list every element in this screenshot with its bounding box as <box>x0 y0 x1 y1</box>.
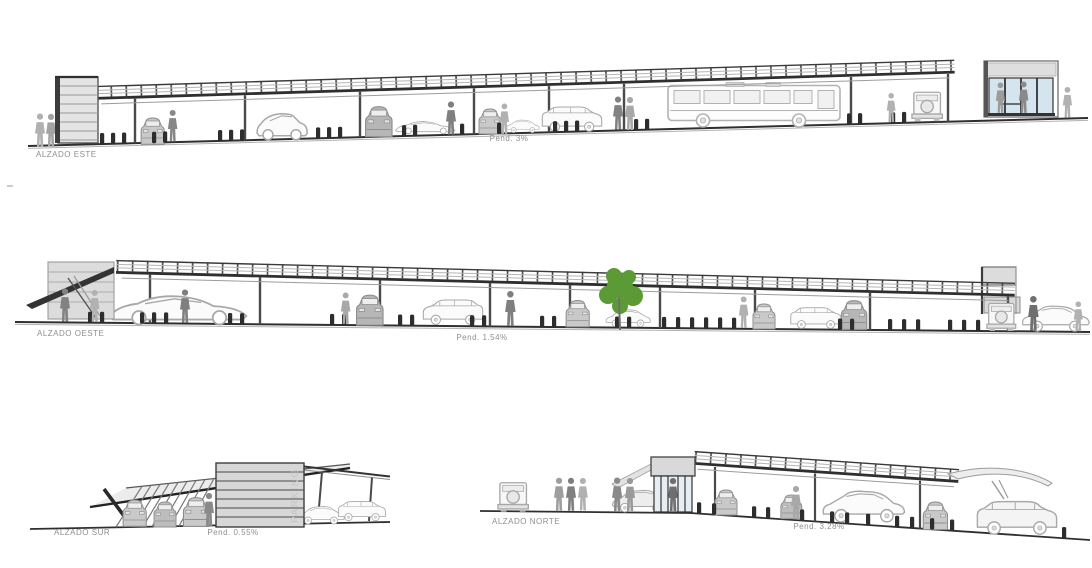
label-slope-este: Pend. 3% <box>490 134 529 143</box>
vehicles-oeste <box>110 295 1089 331</box>
label-alzado-oeste: ALZADO OESTE <box>37 329 104 338</box>
label-alzado-norte: ALZADO NORTE <box>492 517 560 526</box>
elevation-este: ALZADO ESTE Pend. 3% <box>28 60 1088 159</box>
elevation-drawing-canvas: ALZADO ESTE Pend. 3% <box>0 0 1092 568</box>
canopy-railing-oeste <box>116 260 1015 301</box>
label-slope-norte: Pend. 3.28% <box>793 522 844 531</box>
swoosh-canopy-norte <box>948 468 1052 499</box>
entrance-tower-norte <box>651 457 695 512</box>
elevation-oeste: ALZADO OESTE Pend. 1.54% <box>15 260 1090 342</box>
entrance-building-este <box>984 61 1058 117</box>
label-slope-oeste: Pend. 1.54% <box>456 333 507 342</box>
label-alzado-este: ALZADO ESTE <box>36 150 97 159</box>
person <box>1063 87 1072 117</box>
label-slope-sur: Pend. 0.55% <box>207 528 258 537</box>
stair-tower-este <box>55 77 98 143</box>
elevation-norte: ALZADO NORTE Pend. 3.28% <box>480 451 1090 540</box>
parking-sign-text: PARKING <box>290 468 301 523</box>
label-alzado-sur: ALZADO SUR <box>54 528 110 537</box>
elevation-sur: PARKING ALZADO SUR Pend. 0.55% <box>30 463 390 537</box>
entry-building-oeste <box>26 262 114 319</box>
architectural-sheet: ALZADO ESTE Pend. 3% <box>0 0 1092 568</box>
parking-tower-sur: PARKING <box>216 463 304 527</box>
canopy-fin-norte <box>612 464 651 488</box>
